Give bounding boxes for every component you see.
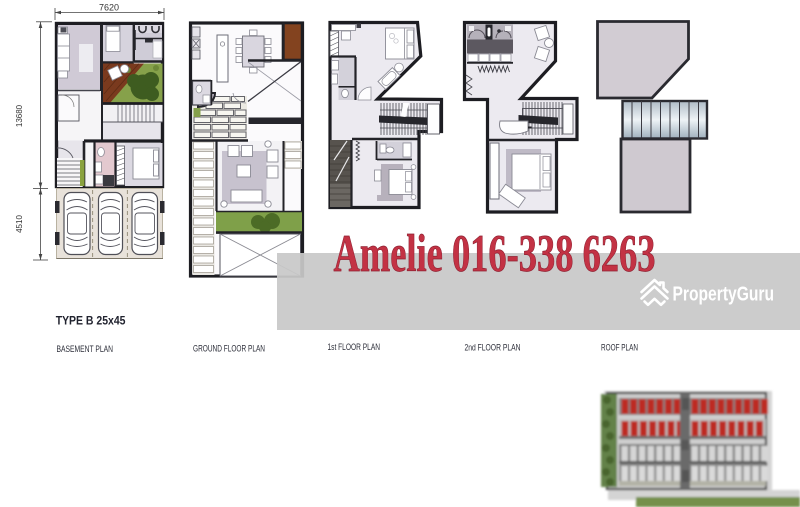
svg-text:1st FLOOR PLAN: 1st FLOOR PLAN — [328, 342, 381, 352]
svg-text:BASEMENT PLAN: BASEMENT PLAN — [57, 344, 114, 354]
svg-text:2nd FLOOR PLAN: 2nd FLOOR PLAN — [465, 342, 521, 352]
svg-text:ROOF PLAN: ROOF PLAN — [601, 342, 638, 352]
svg-text:TYPE B 25x45: TYPE B 25x45 — [56, 314, 126, 328]
svg-text:PropertyGuru: PropertyGuru — [673, 283, 775, 306]
svg-text:4510: 4510 — [15, 215, 24, 233]
svg-text:Amelie 016-338 6263: Amelie 016-338 6263 — [334, 225, 656, 283]
svg-text:7620: 7620 — [99, 3, 119, 13]
svg-text:13680: 13680 — [15, 104, 24, 127]
svg-text:GROUND FLOOR PLAN: GROUND FLOOR PLAN — [193, 343, 265, 353]
